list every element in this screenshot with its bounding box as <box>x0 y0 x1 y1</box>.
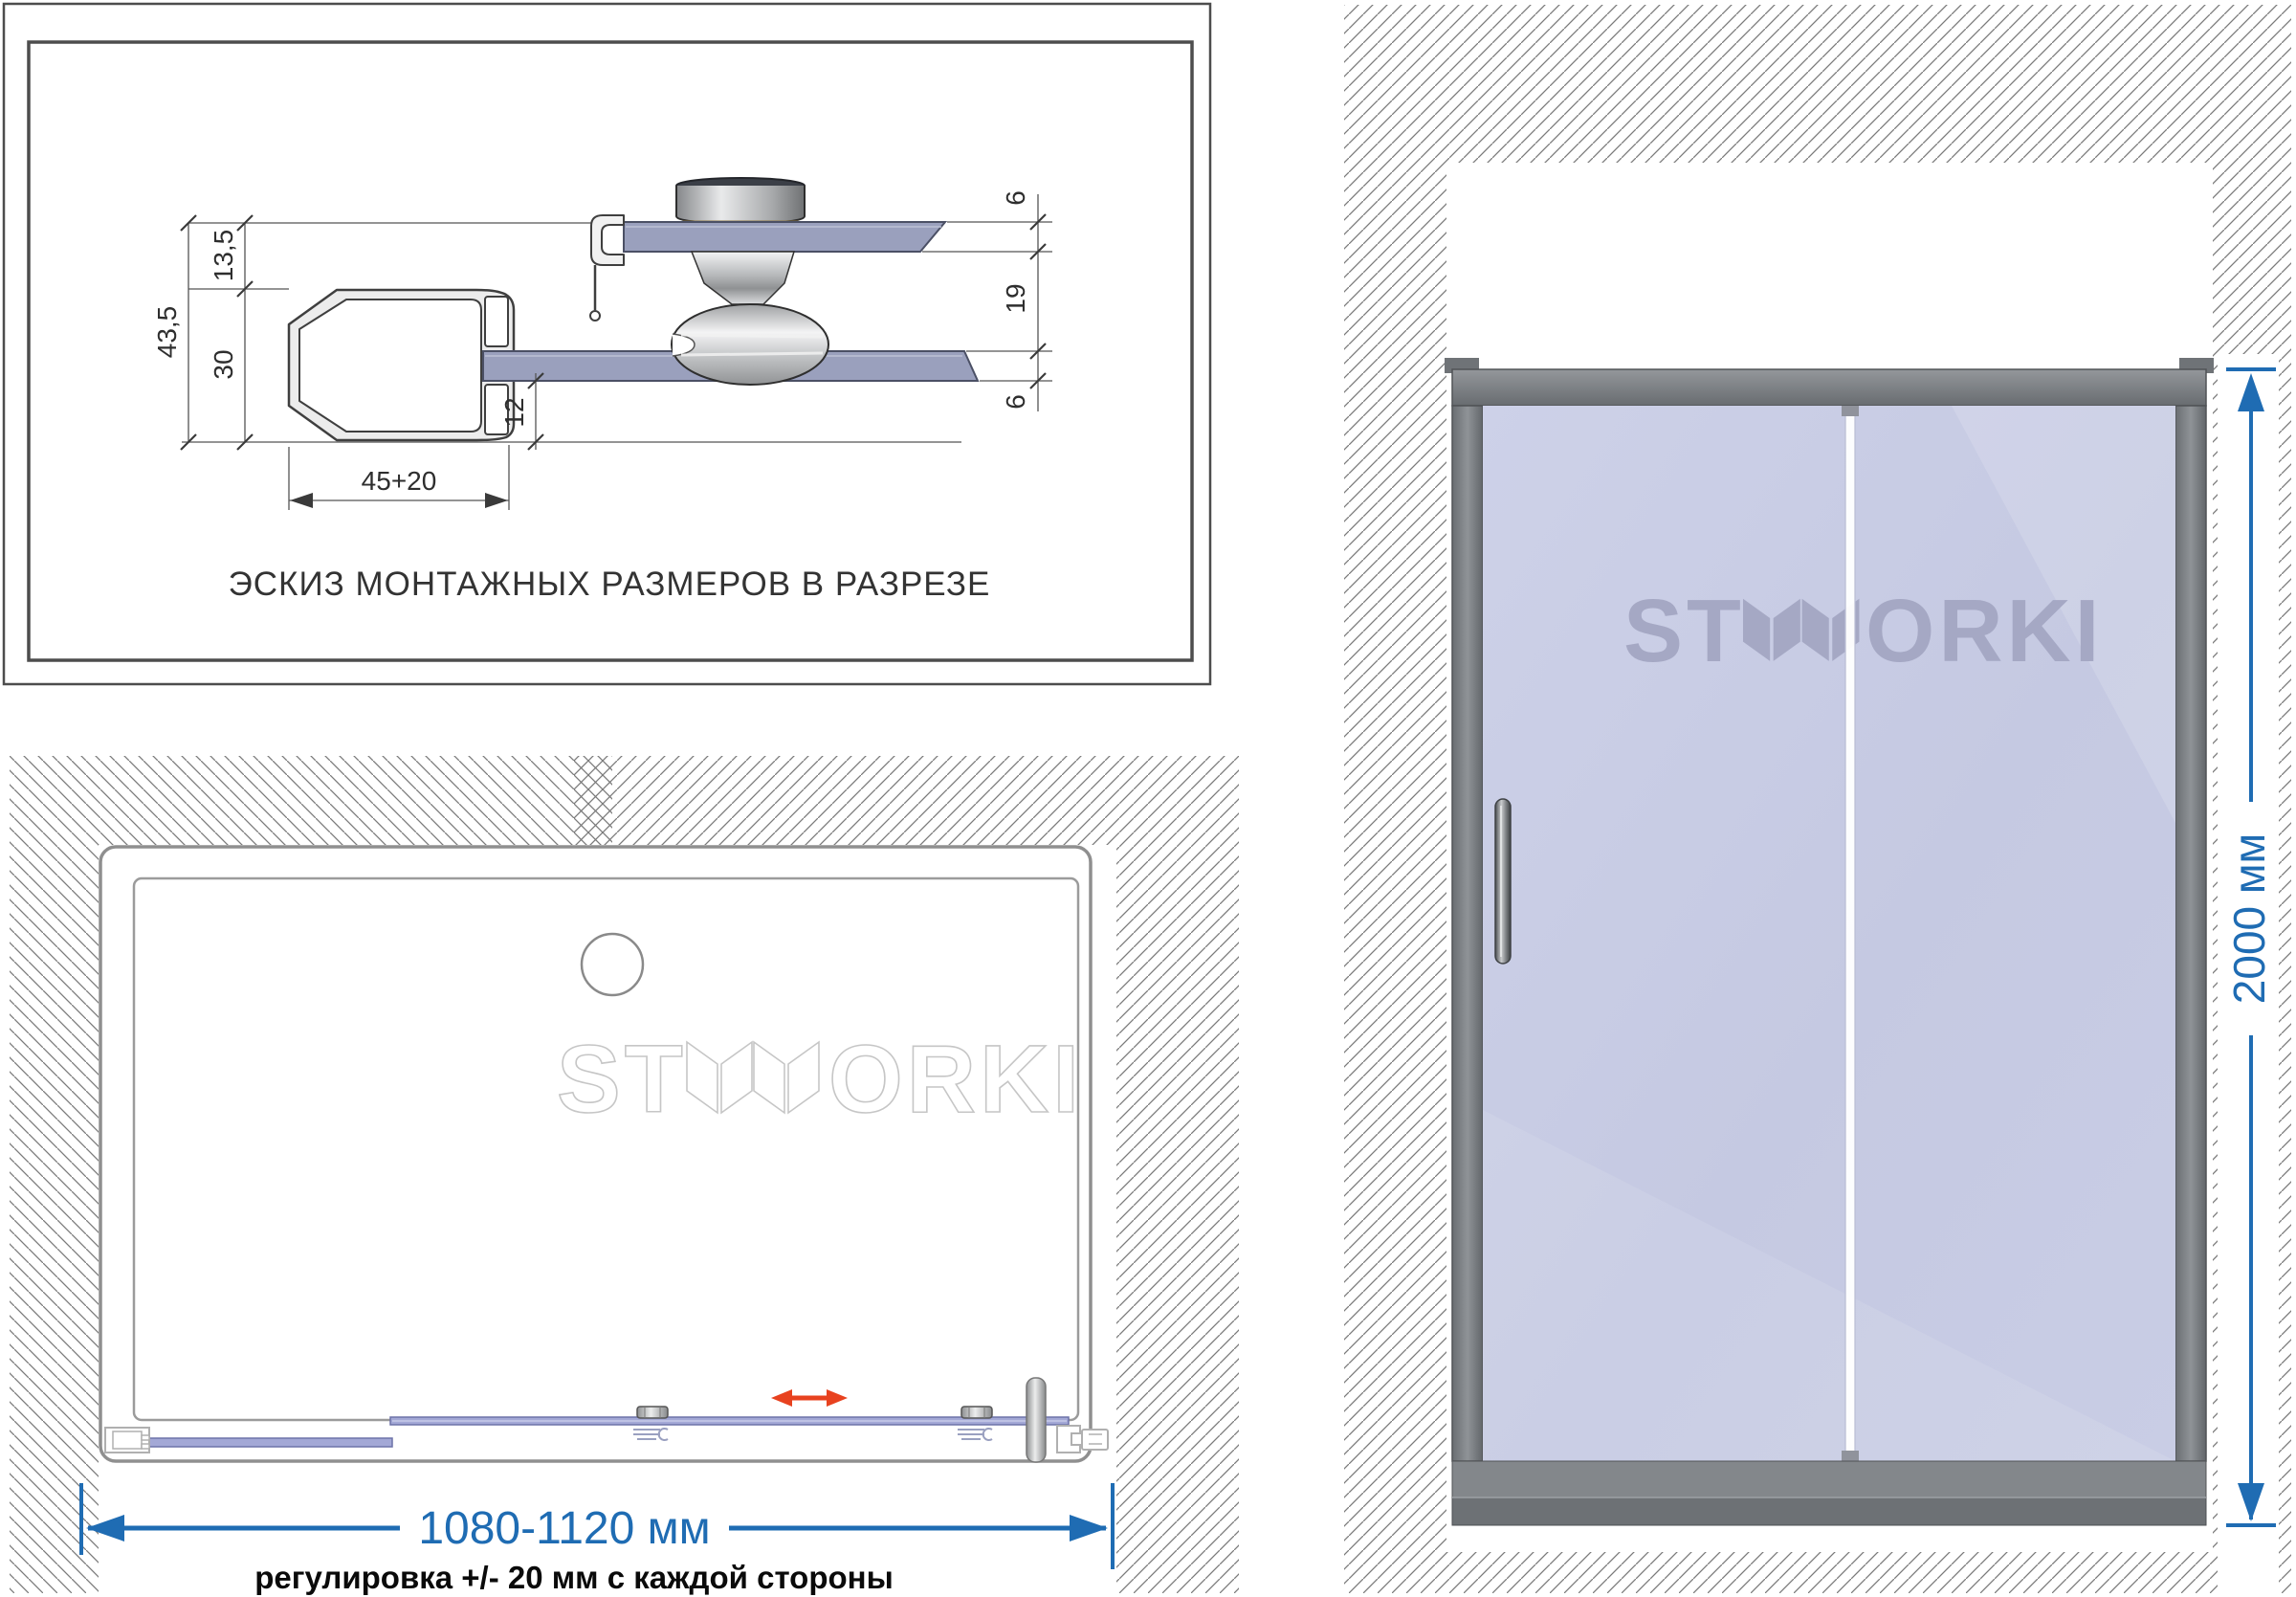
plan-width-dimension: 1080-1120 мм <box>81 1483 1113 1569</box>
logo-orki: ORKI <box>1865 581 2104 680</box>
dim-label-door-glass: 6 <box>1001 394 1030 410</box>
plan-roller-left <box>637 1407 668 1418</box>
technical-drawing-sheet: 43,5 13,5 30 12 45+20 6 19 6 ЭСКИЗ МОНТА… <box>0 0 2296 1597</box>
door-handle <box>1495 799 1511 964</box>
plan-wall-hatch-top-right <box>574 756 1239 845</box>
frame-left-stile <box>1452 406 1483 1461</box>
logo-st: ST <box>1623 581 1745 680</box>
fixed-glass-section <box>624 222 945 252</box>
drawing-canvas: 43,5 13,5 30 12 45+20 6 19 6 ЭСКИЗ МОНТА… <box>0 0 2296 1597</box>
watermark-orki: ORKI <box>828 1026 1083 1133</box>
plan-left-wall-bracket <box>105 1428 149 1453</box>
plan-door-handle <box>1027 1378 1046 1462</box>
front-view-drawing: ST ORKI <box>1344 5 2291 1593</box>
dim-label-glass-to-bottom: 12 <box>499 397 529 427</box>
wall-profile-section <box>289 290 514 440</box>
bracket-pin-tip <box>590 311 600 321</box>
plan-wall-hatch-top-left <box>10 756 612 845</box>
plan-wall-hatch-right <box>1116 845 1239 1593</box>
plan-width-label: 1080-1120 мм <box>418 1503 710 1554</box>
plan-wall-hatch-left <box>10 845 99 1593</box>
front-height-label: 2000 мм <box>2224 833 2274 1004</box>
dim-label-profile-height: 30 <box>209 349 238 379</box>
roller-lower-parts <box>672 252 828 385</box>
watermark-st: ST <box>557 1026 687 1133</box>
dim-label-profile-width: 45+20 <box>362 466 437 496</box>
plan-fixed-glass <box>112 1438 392 1447</box>
dim-label-roller-gap: 19 <box>1001 283 1030 313</box>
wall-bracket-hook <box>590 215 624 321</box>
plan-right-wall-bracket <box>1057 1426 1108 1453</box>
frame-top-rail <box>1452 369 2206 406</box>
dim-label-top-offset: 13,5 <box>209 230 238 282</box>
dim-label-fixed-glass: 6 <box>1001 190 1030 206</box>
plan-view-drawing: ST ORKI <box>10 756 1239 1595</box>
section-caption: ЭСКИЗ МОНТАЖНЫХ РАЗМЕРОВ В РАЗРЕЗЕ <box>229 566 991 603</box>
frame-bottom-rail-lower <box>1452 1497 2206 1525</box>
dim-label-total-height: 43,5 <box>152 306 182 359</box>
frame-bottom-rail-upper <box>1452 1461 2206 1497</box>
shower-door: ST ORKI <box>1445 358 2214 1525</box>
section-view-drawing: 43,5 13,5 30 12 45+20 6 19 6 ЭСКИЗ МОНТА… <box>4 4 1210 684</box>
frame-right-stile <box>2175 406 2206 1461</box>
plan-roller-right <box>961 1407 992 1418</box>
adjustment-note: регулировка +/- 20 мм с каждой стороны <box>254 1560 894 1595</box>
roller-cone <box>692 252 794 304</box>
